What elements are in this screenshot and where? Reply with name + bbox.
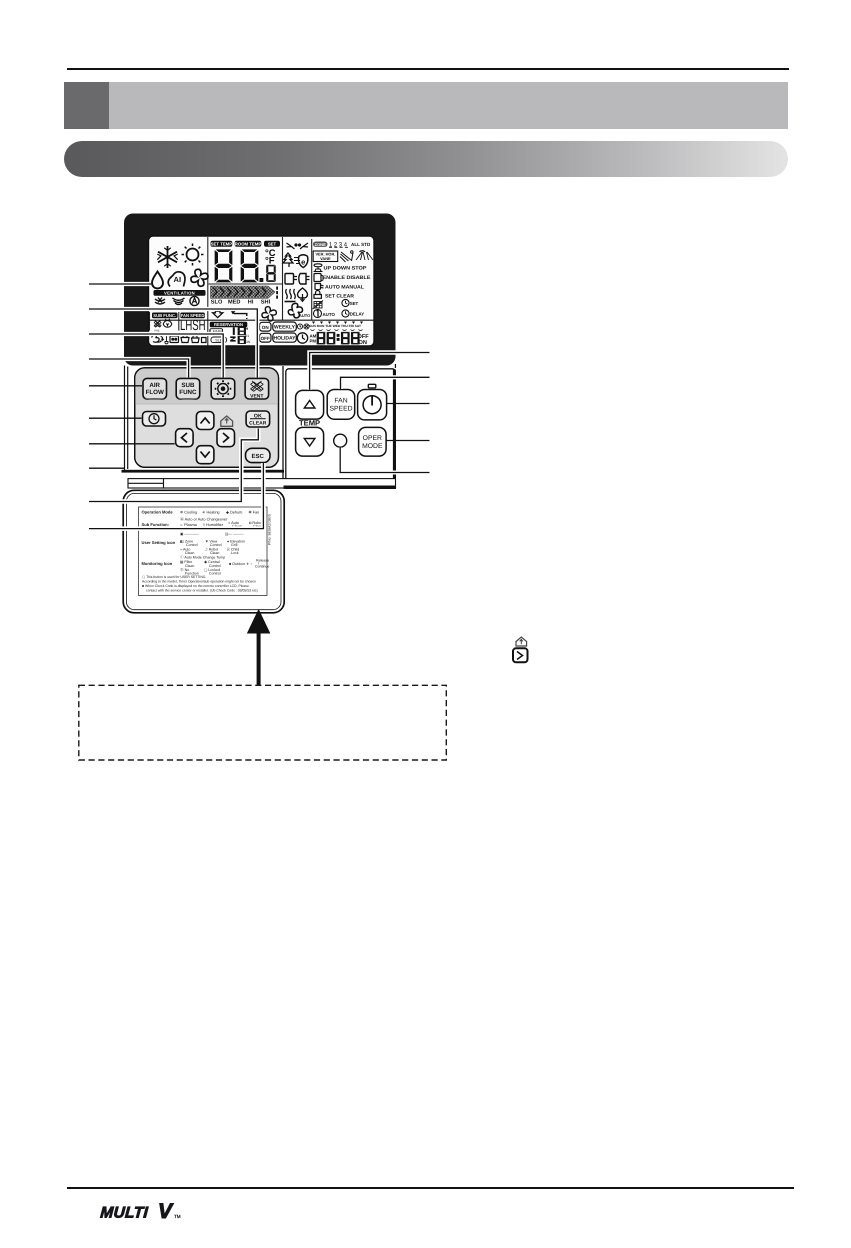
svg-text:PM: PM <box>310 339 317 344</box>
svg-text:SPEED: SPEED <box>329 406 352 413</box>
svg-text:WEEKLY: WEEKLY <box>274 325 296 331</box>
svg-text:ZONE: ZONE <box>315 242 326 247</box>
svg-text:Sub Function:: Sub Function: <box>142 522 170 527</box>
svg-text:⚜ ↑: ⚜ ↑ <box>246 562 252 566</box>
svg-text:CLEAR: CLEAR <box>249 421 267 427</box>
svg-text:SET TEMP: SET TEMP <box>211 242 233 247</box>
svg-text:ON: ON <box>246 340 251 344</box>
svg-text:❃ Fan: ❃ Fan <box>249 511 260 515</box>
svg-text:◆ Dehum.: ◆ Dehum. <box>226 511 243 515</box>
svg-text:SLO: SLO <box>211 299 223 305</box>
svg-text:▣ ————: ▣ ———— <box>180 532 199 536</box>
svg-text:Monitoring Icon: Monitoring Icon <box>142 561 173 566</box>
svg-text:MULTI: MULTI <box>100 1205 149 1222</box>
svg-text:TEMP: TEMP <box>299 419 320 428</box>
svg-text:ENABLE DISABLE: ENABLE DISABLE <box>323 275 372 281</box>
svg-text:Clean: Clean <box>210 551 219 555</box>
svg-text:contact with the service cente: contact with the service center or insta… <box>146 589 258 593</box>
svg-text:ALL STD: ALL STD <box>351 242 371 247</box>
svg-text:SUN MON TUE WED THU FRI SAT: SUN MON TUE WED THU FRI SAT <box>309 324 361 328</box>
svg-text:VENT: VENT <box>250 394 263 400</box>
svg-text:ROOM TEMP: ROOM TEMP <box>235 242 262 247</box>
svg-text:MODE: MODE <box>362 443 383 450</box>
svg-text:Ⓐ Auto or Auto Changeover: Ⓐ Auto or Auto Changeover <box>180 517 228 522</box>
svg-text:Continue: Continue <box>255 565 269 569</box>
svg-text:SET: SET <box>350 301 359 306</box>
svg-text:☀ Heating: ☀ Heating <box>202 511 220 515</box>
svg-text:H: H <box>246 327 249 331</box>
svg-text:Control: Control <box>209 572 221 576</box>
svg-text:OPER: OPER <box>363 435 382 442</box>
svg-text:❄ Cooling: ❄ Cooling <box>180 511 197 515</box>
svg-text:01: 01 <box>246 334 250 338</box>
svg-text:Operation Mode: Operation Mode <box>142 510 174 515</box>
svg-text:RESERVATION: RESERVATION <box>214 322 243 327</box>
svg-text:ESC: ESC <box>252 453 265 460</box>
svg-text:SHI: SHI <box>261 299 271 305</box>
svg-text:V: V <box>158 1200 174 1223</box>
svg-text:ON: ON <box>262 325 270 330</box>
svg-text:■ Outdoor: ■ Outdoor <box>229 562 246 566</box>
svg-text:UP DOWN STOP: UP DOWN STOP <box>324 265 368 271</box>
svg-text:SET CLEAR: SET CLEAR <box>325 294 354 300</box>
svg-text:AUTO: AUTO <box>323 312 336 317</box>
svg-text:TM: TM <box>174 1214 181 1219</box>
svg-text:FLOW: FLOW <box>146 389 164 396</box>
svg-text:FAN: FAN <box>334 397 347 404</box>
svg-text:◊ Humidifier: ◊ Humidifier <box>203 523 224 527</box>
svg-text:AIR: AIR <box>149 382 160 389</box>
svg-text:°F: °F <box>265 256 275 267</box>
svg-text:OFF: OFF <box>261 336 270 341</box>
svg-text:⎁ Plasma: ⎁ Plasma <box>180 523 198 527</box>
svg-text:AUTO: AUTO <box>299 313 310 318</box>
svg-text:Clean: Clean <box>185 564 194 568</box>
svg-text:SUB: SUB <box>181 382 195 389</box>
svg-text:VANE: VANE <box>320 256 331 261</box>
svg-text:HI: HI <box>248 299 254 305</box>
svg-text:DELAY: DELAY <box>350 312 365 317</box>
svg-text:AUTO MANUAL: AUTO MANUAL <box>325 284 364 290</box>
svg-text:VENTILATION: VENTILATION <box>164 291 195 296</box>
svg-text:P/No: 3828A20380S: P/No: 3828A20380S <box>268 513 272 545</box>
svg-text:According to the model, Timer: According to the model, Timer Operation/… <box>142 579 256 583</box>
svg-text:▤— ———: ▤— ——— <box>225 532 244 536</box>
svg-text:SET: SET <box>268 242 277 247</box>
svg-text:AI: AI <box>174 275 182 284</box>
svg-text:MED: MED <box>228 299 240 305</box>
svg-text:SUB FUNC.: SUB FUNC. <box>153 313 176 318</box>
svg-text:FUNC: FUNC <box>179 389 197 396</box>
svg-text:User Setting icon: User Setting icon <box>142 540 176 545</box>
svg-text:HOLIDAY: HOLIDAY <box>273 336 296 342</box>
svg-text:■ When Check Code is displayed: ■ When Check Code is displayed on the re… <box>142 584 249 588</box>
svg-text:Control: Control <box>210 543 222 547</box>
svg-text:LHSH: LHSH <box>180 318 206 334</box>
svg-text:▢ This button is used for USER: ▢ This button is used for USER SETTING. <box>142 575 206 579</box>
svg-text:Control: Control <box>209 564 221 568</box>
svg-text:ⓘ Auto Mode Change Temp: ⓘ Auto Mode Change Temp <box>180 555 225 560</box>
svg-text:Clean: Clean <box>185 551 194 555</box>
svg-text:Grill: Grill <box>231 543 238 547</box>
svg-text:Lock: Lock <box>231 551 239 555</box>
svg-text:Control: Control <box>186 543 198 547</box>
svg-text:e: e <box>301 257 305 266</box>
svg-text:ON: ON <box>359 340 367 346</box>
